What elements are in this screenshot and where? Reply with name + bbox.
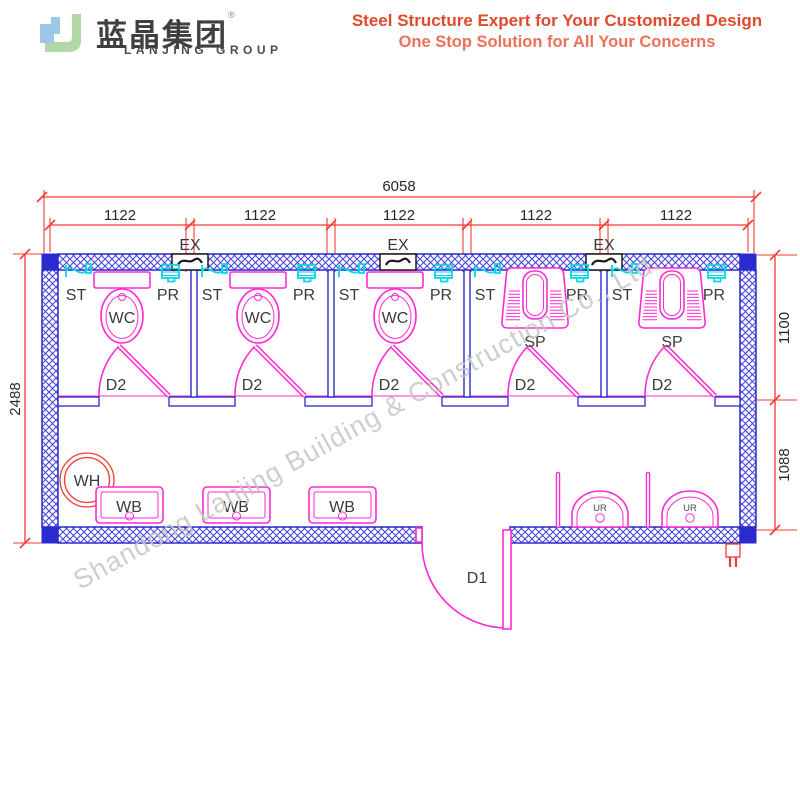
logo-blue-shape [40, 17, 60, 43]
paper-roll-label: PR [703, 287, 725, 304]
stall-door-label: D2 [515, 377, 536, 394]
stall-door-label: D2 [652, 377, 673, 394]
exhaust-fan-icon [380, 254, 416, 270]
toilet-label: WC [382, 310, 409, 327]
paper-roll-label: PR [430, 287, 452, 304]
dim-module-4: 1122 [520, 207, 552, 224]
tagline-line1: Steel Structure Expert for Your Customiz… [318, 9, 796, 32]
lanjing-logo-icon [32, 8, 84, 56]
left-wall [42, 270, 58, 527]
brand-name-en: LANJING GROUP [124, 43, 283, 57]
bottom-wall-left [58, 527, 422, 543]
urinal-label: UR [683, 503, 697, 514]
dim-overall-width: 6058 [382, 178, 415, 195]
tagline-line2: One Stop Solution for All Your Concerns [318, 32, 796, 53]
corner-post [740, 527, 756, 543]
sprayer-label: ST [202, 287, 223, 304]
corner-post [42, 527, 58, 543]
dim-module-2: 1122 [244, 207, 276, 224]
corner-post [42, 254, 58, 270]
exhaust-fan-label: EX [179, 237, 201, 254]
sprayer-label: ST [475, 287, 496, 304]
floor-plan-drawing: 6058 1122 1122 1122 1122 1122 2488 1100 … [0, 62, 800, 800]
wash-basin-label: WB [329, 499, 355, 516]
registered-mark: ® [228, 10, 235, 20]
toilet-icon [367, 272, 423, 343]
bottom-wall-right [510, 527, 740, 543]
urinals: UR UR [558, 474, 718, 527]
sprayer-label: ST [66, 287, 87, 304]
dim-upper-depth: 1100 [776, 312, 793, 344]
dim-overall-height: 2488 [7, 382, 24, 415]
dimension-overall-height: 2488 [7, 249, 42, 548]
urinal-label: UR [593, 503, 607, 514]
dim-module-3: 1122 [383, 207, 415, 224]
squat-pan-label: SP [661, 334, 682, 351]
toilet-icon [94, 272, 150, 343]
toilet-label: WC [109, 310, 136, 327]
dim-module-5: 1122 [660, 207, 692, 224]
drain-outlet-icon [726, 544, 740, 567]
toilet-icon [230, 272, 286, 343]
right-wall [740, 270, 756, 527]
main-door-label: D1 [467, 570, 488, 587]
stall-door-label: D2 [242, 377, 263, 394]
corner-post [740, 254, 756, 270]
water-heater-label: WH [74, 473, 101, 490]
sprayer-label: ST [339, 287, 360, 304]
paper-roll-label: PR [157, 287, 179, 304]
exhaust-fan-label: EX [593, 237, 615, 254]
stall-partition [191, 270, 197, 397]
wash-basin-label: WB [116, 499, 142, 516]
toilet-label: WC [245, 310, 272, 327]
page-header: 蓝晶集团® LANJING GROUP Steel Structure Expe… [0, 0, 800, 62]
main-door: D1 [416, 528, 511, 629]
dim-module-1: 1122 [104, 207, 136, 224]
stall-door-label: D2 [106, 377, 127, 394]
taglines: Steel Structure Expert for Your Customiz… [318, 9, 796, 53]
stall-partition [328, 270, 334, 397]
paper-roll-label: PR [293, 287, 315, 304]
dim-lower-depth: 1088 [776, 448, 793, 481]
exhaust-fan-label: EX [387, 237, 409, 254]
